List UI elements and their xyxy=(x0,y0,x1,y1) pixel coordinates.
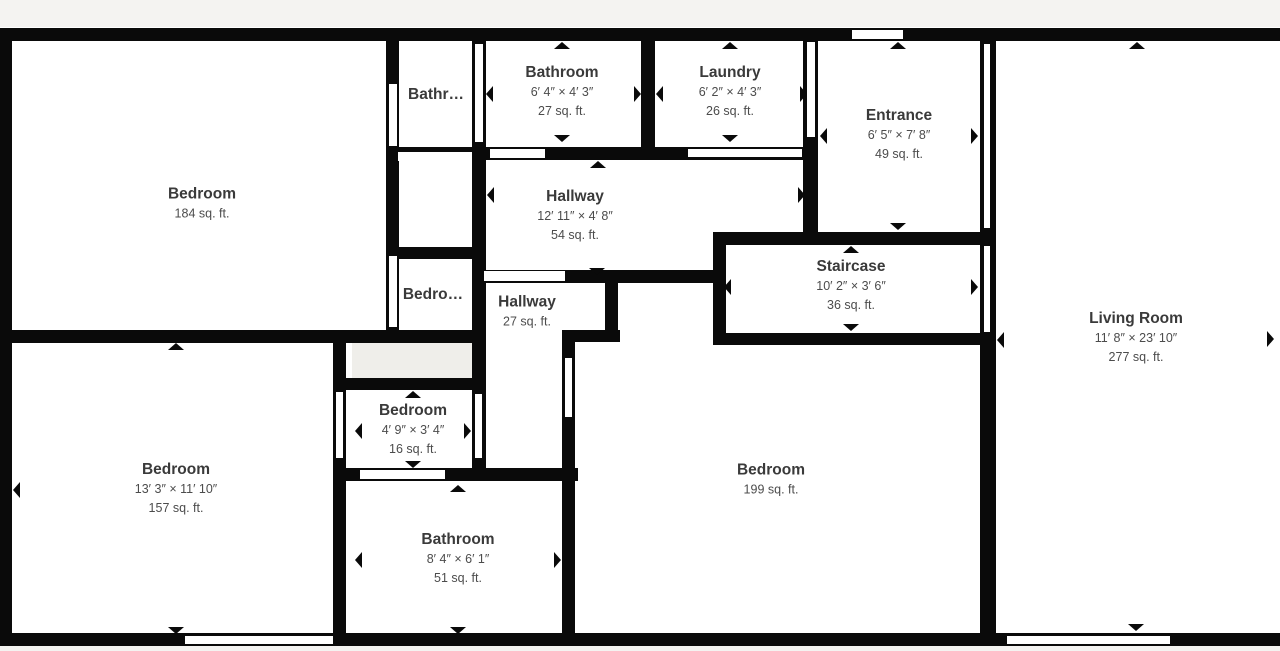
door-opening xyxy=(490,149,545,158)
door-opening xyxy=(565,358,572,417)
room-label-bathroom-27: Bathroom 6′ 4″ × 4′ 3″ 27 sq. ft. xyxy=(525,63,598,121)
room-label-bedroom-16: Bedroom 4′ 9″ × 3′ 4″ 16 sq. ft. xyxy=(379,401,447,459)
dim-arrow-right xyxy=(554,552,561,568)
room-label-bathroom-small: Bathr… xyxy=(408,85,464,105)
wall-segment xyxy=(0,330,486,343)
dim-arrow-up xyxy=(1129,42,1145,49)
dim-arrow-up xyxy=(843,246,859,253)
room-area: 184 sq. ft. xyxy=(168,205,236,224)
room-name: Entrance xyxy=(866,106,932,126)
dim-arrow-left xyxy=(656,86,663,102)
wall-seam xyxy=(984,44,990,228)
dim-arrow-up xyxy=(450,485,466,492)
dim-arrow-right xyxy=(334,482,341,498)
room-name: Bathr… xyxy=(408,85,464,105)
wall-segment xyxy=(386,247,486,259)
room-name: Bedroom xyxy=(379,401,447,421)
room-label-bedroom-199: Bedroom 199 sq. ft. xyxy=(737,461,805,500)
door-opening xyxy=(389,84,397,146)
room-dimensions: 11′ 8″ × 23′ 10″ xyxy=(1089,329,1183,348)
room-area: 36 sq. ft. xyxy=(816,296,886,315)
room-name: Staircase xyxy=(816,257,886,277)
closet-area xyxy=(352,343,472,378)
room-label-entrance: Entrance 6′ 5″ × 7′ 8″ 49 sq. ft. xyxy=(866,106,932,164)
window-opening xyxy=(185,636,333,644)
dim-arrow-left xyxy=(486,86,493,102)
room-dimensions: 4′ 9″ × 3′ 4″ xyxy=(379,421,447,440)
room-area: 49 sq. ft. xyxy=(866,145,932,164)
dim-arrow-down xyxy=(722,135,738,142)
door-opening xyxy=(398,152,472,161)
dim-arrow-down xyxy=(1128,624,1144,631)
floor-plan-canvas: Bedroom 184 sq. ft. Bathr… Bathroom 6′ 4… xyxy=(0,0,1280,651)
room-label-bathroom-51: Bathroom 8′ 4″ × 6′ 1″ 51 sq. ft. xyxy=(421,530,494,588)
room-area: 27 sq. ft. xyxy=(525,102,598,121)
dim-arrow-right xyxy=(971,128,978,144)
dim-arrow-left xyxy=(997,332,1004,348)
dim-arrow-left xyxy=(820,128,827,144)
wall-seam xyxy=(984,246,990,332)
dim-arrow-up xyxy=(890,42,906,49)
dim-arrow-down xyxy=(890,223,906,230)
wall-seam xyxy=(346,343,352,378)
room-area: 54 sq. ft. xyxy=(537,226,613,245)
window-opening xyxy=(852,30,903,39)
dim-arrow-right xyxy=(798,187,805,203)
dim-arrow-right xyxy=(634,86,641,102)
room-dimensions: 13′ 3″ × 11′ 10″ xyxy=(135,480,217,499)
room-dimensions: 6′ 5″ × 7′ 8″ xyxy=(866,126,932,145)
wall-segment xyxy=(713,333,996,345)
room-name: Bedroom xyxy=(737,461,805,481)
room-label-living-room: Living Room 11′ 8″ × 23′ 10″ 277 sq. ft. xyxy=(1089,309,1183,367)
dim-arrow-up xyxy=(168,343,184,350)
dim-arrow-right xyxy=(464,423,471,439)
room-name: Bathroom xyxy=(525,63,598,83)
room-name: Bedroom xyxy=(168,185,236,205)
room-area: 27 sq. ft. xyxy=(498,313,556,332)
dim-arrow-left xyxy=(13,482,20,498)
room-label-bedroom-184: Bedroom 184 sq. ft. xyxy=(168,185,236,224)
dim-arrow-right xyxy=(1267,331,1274,347)
wall-segment xyxy=(345,378,486,390)
dim-arrow-down xyxy=(843,324,859,331)
dim-arrow-down xyxy=(554,135,570,142)
room-name: Bedroom xyxy=(135,460,217,480)
wall-segment xyxy=(641,28,655,160)
room-name: Bedro… xyxy=(403,285,463,305)
room-label-hallway-54: Hallway 12′ 11″ × 4′ 8″ 54 sq. ft. xyxy=(537,187,613,245)
door-opening xyxy=(688,149,802,157)
dim-arrow-right xyxy=(971,279,978,295)
room-name: Laundry xyxy=(699,63,762,83)
room-dimensions: 8′ 4″ × 6′ 1″ xyxy=(421,550,494,569)
room-area: 199 sq. ft. xyxy=(737,481,805,500)
door-opening xyxy=(336,392,343,458)
door-opening xyxy=(389,256,397,327)
room-label-laundry: Laundry 6′ 2″ × 4′ 3″ 26 sq. ft. xyxy=(699,63,762,121)
room-dimensions: 6′ 4″ × 4′ 3″ xyxy=(525,83,598,102)
room-area: 51 sq. ft. xyxy=(421,569,494,588)
dim-arrow-left xyxy=(355,423,362,439)
door-opening xyxy=(475,394,482,458)
dim-arrow-down xyxy=(405,461,421,468)
wall-seam xyxy=(807,42,815,137)
wall-seam xyxy=(475,44,483,142)
dim-arrow-left xyxy=(724,279,731,295)
room-name: Living Room xyxy=(1089,309,1183,329)
dim-arrow-up xyxy=(405,391,421,398)
dim-arrow-up xyxy=(590,161,606,168)
dim-arrow-right xyxy=(800,86,807,102)
dim-arrow-down xyxy=(589,268,605,275)
wall-segment xyxy=(0,28,1280,41)
room-area: 16 sq. ft. xyxy=(379,440,447,459)
room-name: Hallway xyxy=(498,293,556,313)
dim-arrow-left xyxy=(487,187,494,203)
dim-arrow-up xyxy=(554,42,570,49)
dim-arrow-down xyxy=(168,627,184,634)
door-opening xyxy=(360,470,445,479)
dim-arrow-left xyxy=(355,552,362,568)
room-label-staircase: Staircase 10′ 2″ × 3′ 6″ 36 sq. ft. xyxy=(816,257,886,315)
room-label-bedroom-small: Bedro… xyxy=(403,285,463,305)
dim-arrow-up xyxy=(722,42,738,49)
dim-arrow-down xyxy=(450,627,466,634)
room-dimensions: 6′ 2″ × 4′ 3″ xyxy=(699,83,762,102)
room-dimensions: 10′ 2″ × 3′ 6″ xyxy=(816,277,886,296)
door-opening xyxy=(484,271,565,281)
room-area: 157 sq. ft. xyxy=(135,499,217,518)
room-area: 277 sq. ft. xyxy=(1089,348,1183,367)
room-name: Hallway xyxy=(537,187,613,207)
room-label-bedroom-157: Bedroom 13′ 3″ × 11′ 10″ 157 sq. ft. xyxy=(135,460,217,518)
window-opening xyxy=(1007,636,1170,644)
room-label-hallway-27: Hallway 27 sq. ft. xyxy=(498,293,556,332)
room-name: Bathroom xyxy=(421,530,494,550)
room-dimensions: 12′ 11″ × 4′ 8″ xyxy=(537,207,613,226)
wall-segment xyxy=(713,232,996,245)
room-area: 26 sq. ft. xyxy=(699,102,762,121)
